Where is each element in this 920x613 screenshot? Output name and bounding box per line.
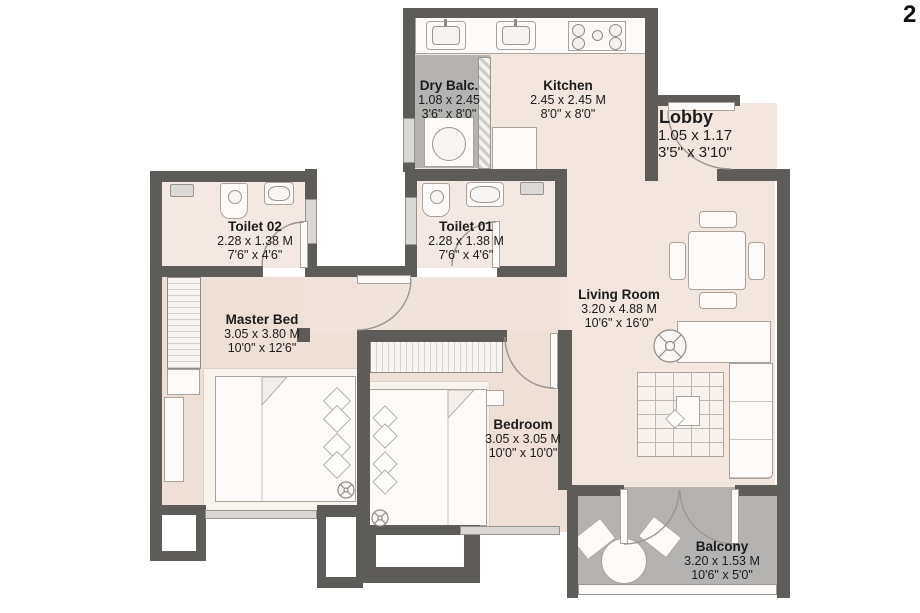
room-dim-m: 3.20 x 1.53 M bbox=[663, 554, 781, 568]
room-dim-m: 3.05 x 3.80 M bbox=[204, 327, 320, 341]
room-name: Living Room bbox=[563, 287, 675, 302]
room-dim-m: 3.20 x 4.88 M bbox=[563, 302, 675, 316]
wall-bedroom-right bbox=[558, 330, 572, 490]
wall-top bbox=[403, 8, 658, 18]
kitchen-sink-icon bbox=[496, 21, 536, 50]
bedside-table-icon bbox=[167, 369, 200, 395]
wall-bedroom-left bbox=[357, 330, 370, 532]
room-dim-m: 1.08 x 2.45 bbox=[404, 93, 494, 107]
dining-table-icon bbox=[688, 231, 746, 290]
door-leaf bbox=[550, 333, 558, 389]
room-dim-ft: 10'0" x 10'0" bbox=[464, 446, 582, 460]
dresser-icon bbox=[164, 397, 184, 482]
wc-lid bbox=[430, 190, 444, 204]
room-name: Bedroom bbox=[464, 417, 582, 432]
knob bbox=[592, 30, 603, 41]
washbasin-icon bbox=[264, 182, 294, 205]
wall-block-opening bbox=[162, 515, 196, 551]
burner bbox=[572, 24, 585, 37]
window bbox=[205, 510, 317, 519]
sofa-icon bbox=[677, 321, 771, 363]
room-name: Lobby bbox=[645, 107, 745, 127]
corridor-floor bbox=[305, 277, 567, 332]
wc-lid bbox=[228, 190, 242, 204]
wall-ledge-opening bbox=[376, 535, 464, 567]
door-leaf bbox=[731, 489, 739, 544]
wall-toilet01-top bbox=[415, 169, 567, 181]
room-dim-m: 2.28 x 1.38 M bbox=[196, 234, 314, 248]
wall-outer-left bbox=[150, 171, 162, 561]
room-label-toilet02: Toilet 02 2.28 x 1.38 M 7'6" x 4'6" bbox=[196, 219, 314, 262]
floor-plan: Dry Balc. 1.08 x 2.45 3'6" x 8'0" Kitche… bbox=[0, 0, 920, 613]
room-label-bedroom: Bedroom 3.05 x 3.05 M 10'0" x 10'0" bbox=[464, 417, 582, 460]
shower-icon bbox=[170, 184, 194, 197]
dining-chair-icon bbox=[699, 292, 737, 309]
wardrobe-icon bbox=[370, 337, 503, 373]
room-dim-m: 2.28 x 1.38 M bbox=[408, 234, 524, 248]
wall-outer-right bbox=[777, 169, 790, 598]
sink-basin bbox=[432, 26, 460, 45]
room-dim-m: 2.45 x 2.45 M bbox=[508, 93, 628, 107]
room-label-balcony: Balcony 3.20 x 1.53 M 10'6" x 5'0" bbox=[663, 539, 781, 582]
washing-machine-icon bbox=[424, 117, 474, 167]
room-dim-ft: 10'0" x 12'6" bbox=[204, 341, 320, 355]
toilet-wc-icon bbox=[422, 183, 450, 217]
window bbox=[403, 118, 415, 163]
dining-chair-icon bbox=[699, 211, 737, 228]
kitchen-sink-icon bbox=[426, 21, 466, 50]
door-leaf bbox=[357, 275, 411, 284]
room-name: Toilet 02 bbox=[196, 219, 314, 234]
window bbox=[460, 526, 560, 535]
room-name: Kitchen bbox=[508, 78, 628, 93]
room-label-lobby: Lobby 1.05 x 1.17 3'5" x 3'10" bbox=[645, 107, 745, 161]
wall-bedroom-top bbox=[357, 330, 507, 342]
dining-chair-icon bbox=[748, 242, 765, 280]
tap-icon bbox=[514, 19, 517, 26]
burner bbox=[609, 24, 622, 37]
room-dim-m: 3.05 x 3.05 M bbox=[464, 432, 582, 446]
room-label-master-bed: Master Bed 3.05 x 3.80 M 10'0" x 12'6" bbox=[204, 312, 320, 355]
wall-block-opening bbox=[326, 517, 356, 577]
shower-icon bbox=[520, 182, 544, 195]
dining-chair-icon bbox=[669, 242, 686, 280]
refrigerator-icon bbox=[492, 127, 537, 170]
room-dim-ft: 3'6" x 8'0" bbox=[404, 107, 494, 121]
tap-icon bbox=[444, 19, 447, 26]
wall-toilet01-right bbox=[555, 169, 567, 277]
room-name: Master Bed bbox=[204, 312, 320, 327]
wall-toilet01-bottom bbox=[497, 266, 567, 277]
room-dim-ft: 3'5" x 3'10" bbox=[645, 144, 745, 161]
room-dim-ft: 7'6" x 4'6" bbox=[408, 248, 524, 262]
balcony-railing bbox=[578, 584, 777, 595]
outdoor-round-table-icon bbox=[601, 538, 647, 584]
burner bbox=[609, 37, 622, 50]
wardrobe-icon bbox=[167, 277, 201, 369]
hob-stove-icon bbox=[568, 21, 626, 51]
wall-toilet02-bottom bbox=[150, 266, 263, 277]
room-label-kitchen: Kitchen 2.45 x 2.45 M 8'0" x 8'0" bbox=[508, 78, 628, 121]
washbasin-icon bbox=[466, 182, 504, 207]
room-label-living: Living Room 3.20 x 4.88 M 10'6" x 16'0" bbox=[563, 287, 675, 330]
burner bbox=[572, 37, 585, 50]
room-label-dry-balcony: Dry Balc. 1.08 x 2.45 3'6" x 8'0" bbox=[404, 78, 494, 121]
room-dim-ft: 8'0" x 8'0" bbox=[508, 107, 628, 121]
room-dim-ft: 7'6" x 4'6" bbox=[196, 248, 314, 262]
wall-balcony-top-right bbox=[735, 485, 790, 496]
washer-drum bbox=[432, 127, 466, 161]
room-dim-m: 1.05 x 1.17 bbox=[645, 127, 745, 144]
sink-basin bbox=[502, 26, 530, 45]
basin-bowl bbox=[470, 186, 500, 203]
sofa-icon bbox=[729, 363, 773, 479]
basin-bowl bbox=[268, 186, 290, 201]
room-name: Dry Balc. bbox=[404, 78, 494, 93]
room-dim-ft: 10'6" x 16'0" bbox=[563, 316, 675, 330]
toilet-wc-icon bbox=[220, 183, 248, 219]
room-name: Toilet 01 bbox=[408, 219, 524, 234]
room-name: Balcony bbox=[663, 539, 781, 554]
wall-toilet02-top bbox=[150, 171, 317, 182]
room-label-toilet01: Toilet 01 2.28 x 1.38 M 7'6" x 4'6" bbox=[408, 219, 524, 262]
wall-balcony-left bbox=[567, 485, 578, 598]
page-number: 2 bbox=[903, 1, 920, 29]
door-leaf bbox=[620, 489, 628, 544]
room-dim-ft: 10'6" x 5'0" bbox=[663, 568, 781, 582]
